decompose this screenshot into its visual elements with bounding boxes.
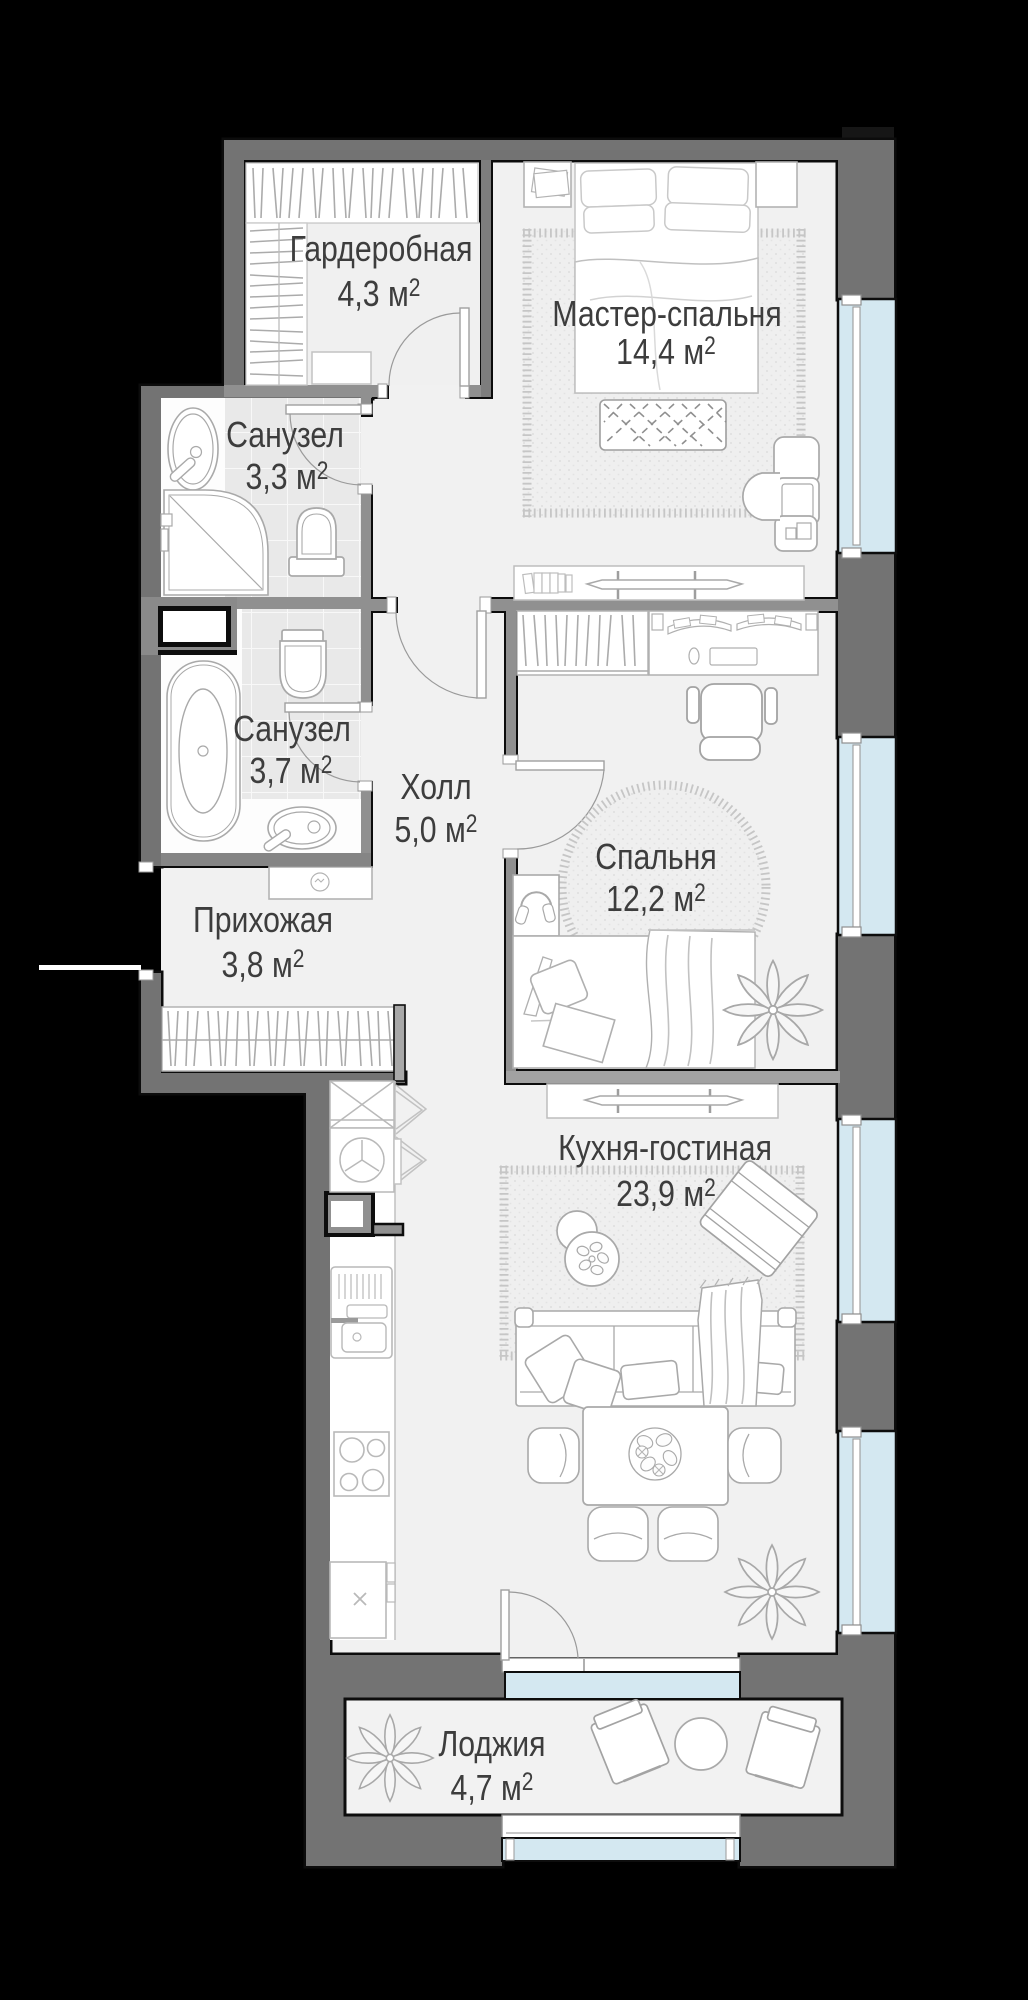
svg-text:Санузел: Санузел [233,710,351,750]
svg-text:3,7 м2: 3,7 м2 [250,750,333,791]
svg-text:Прихожая: Прихожая [193,901,333,941]
svg-text:4,7 м2: 4,7 м2 [451,1767,534,1808]
svg-text:14,4 м2: 14,4 м2 [616,331,716,372]
svg-text:Холл: Холл [400,768,471,808]
svg-text:4,3 м2: 4,3 м2 [338,273,421,314]
svg-text:12,2 м2: 12,2 м2 [606,878,706,919]
svg-text:Мастер-спальня: Мастер-спальня [552,295,781,335]
svg-text:5,0 м2: 5,0 м2 [395,809,478,850]
svg-text:3,3 м2: 3,3 м2 [246,456,329,497]
svg-text:3,8 м2: 3,8 м2 [222,944,305,985]
svg-text:Кухня-гостиная: Кухня-гостиная [558,1129,772,1169]
svg-text:Санузел: Санузел [226,416,344,456]
svg-text:23,9 м2: 23,9 м2 [616,1173,716,1214]
svg-text:Спальня: Спальня [595,838,716,878]
svg-text:Гардеробная: Гардеробная [290,230,473,270]
svg-text:Лоджия: Лоджия [438,1725,545,1765]
